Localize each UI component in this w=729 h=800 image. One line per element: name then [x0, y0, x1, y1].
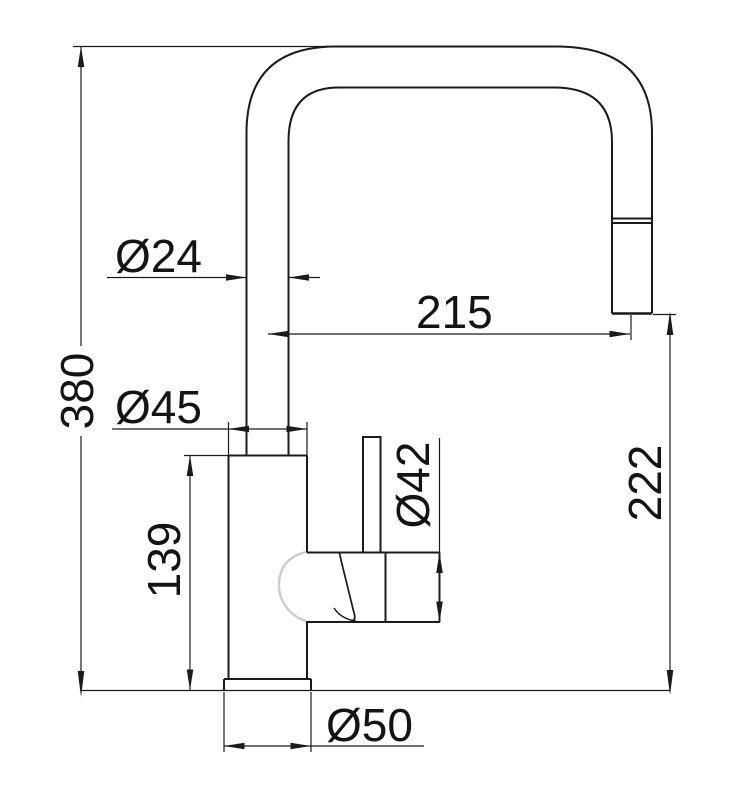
faucet-drawing-svg — [0, 0, 729, 800]
faucet-outline — [224, 47, 652, 691]
arrow-222-down — [667, 670, 674, 695]
dim-label-outlet-height: 222 — [622, 445, 668, 522]
dim-label-body-height: 139 — [141, 522, 187, 599]
arrow-o42-up — [436, 553, 443, 574]
arrow-380-up — [78, 47, 85, 68]
arrow-o42-down — [436, 602, 443, 623]
arrow-215-right — [610, 331, 631, 338]
arrow-139-down — [187, 670, 194, 691]
arrow-o50-left — [224, 743, 245, 750]
dim-label-valve-housing-diameter: Ø42 — [390, 442, 436, 529]
lever-handle — [363, 437, 381, 553]
spout-inner-contour — [289, 88, 613, 456]
arrow-139-up — [187, 456, 194, 477]
valve-dome-arc — [279, 552, 306, 621]
dim-label-overall-height: 380 — [54, 353, 100, 430]
lever-cap-seam — [340, 553, 355, 622]
arrow-380-down — [78, 671, 85, 697]
dim-label-spout-tube-diameter: Ø24 — [115, 233, 202, 279]
spout-outer-contour — [247, 47, 653, 456]
arrow-o45-left — [229, 426, 250, 433]
arrow-o45-right — [287, 426, 308, 433]
arrow-215-left — [268, 331, 289, 338]
dim-label-spout-reach: 215 — [416, 289, 493, 335]
technical-drawing-canvas: Ø24 215 380 Ø45 139 Ø42 222 Ø50 — [0, 0, 729, 800]
dim-label-body-diameter: Ø45 — [115, 384, 202, 430]
arrow-o24-right — [226, 274, 247, 281]
dim-label-base-diameter: Ø50 — [326, 702, 413, 748]
arrow-o24-left — [289, 274, 310, 281]
arrow-o50-right — [291, 743, 312, 750]
